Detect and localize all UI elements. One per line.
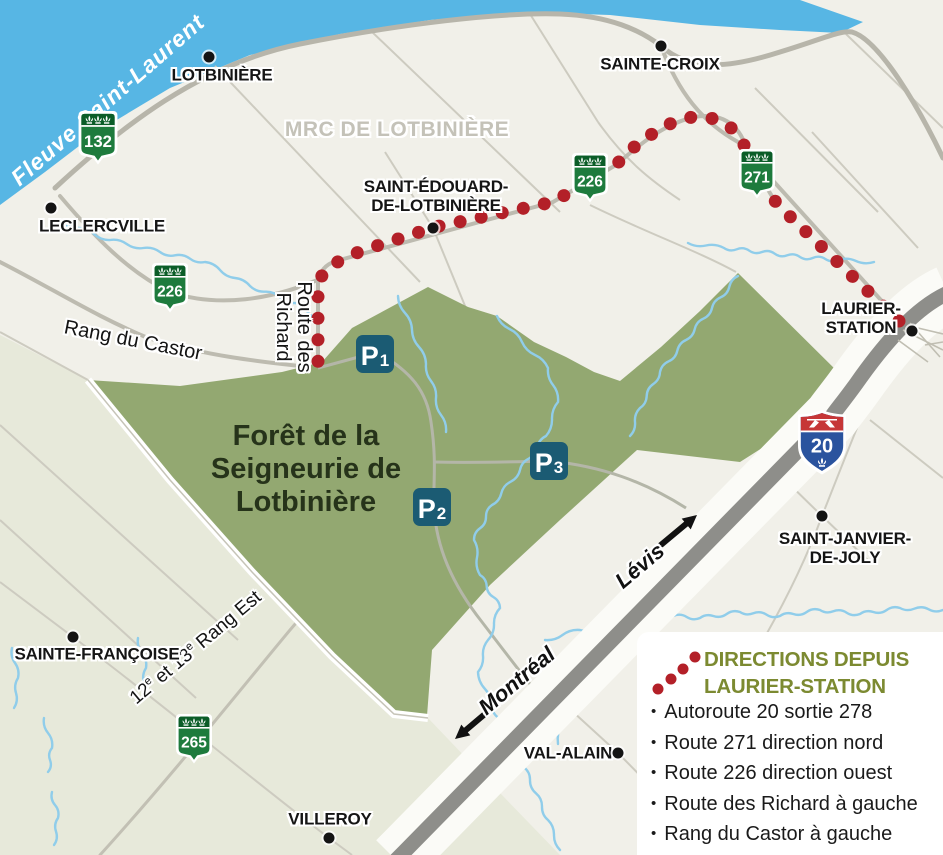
legend-panel: DIRECTIONS DEPUIS LAURIER-STATION Autoro… — [637, 632, 943, 855]
route-dots-icon — [649, 646, 701, 698]
map-infographic: { "region_label": "MRC DE LOTBINIÈRE", "… — [0, 0, 943, 855]
legend-title: DIRECTIONS DEPUIS LAURIER-STATION — [704, 646, 909, 700]
legend-item: Rang du Castor à gauche — [651, 820, 918, 851]
legend-item: Route 226 direction ouest — [651, 759, 918, 790]
legend-item: Route 271 direction nord — [651, 729, 918, 760]
legend-items: Autoroute 20 sortie 278Route 271 directi… — [651, 698, 918, 851]
legend-item: Route des Richard à gauche — [651, 790, 918, 821]
legend-item: Autoroute 20 sortie 278 — [651, 698, 918, 729]
